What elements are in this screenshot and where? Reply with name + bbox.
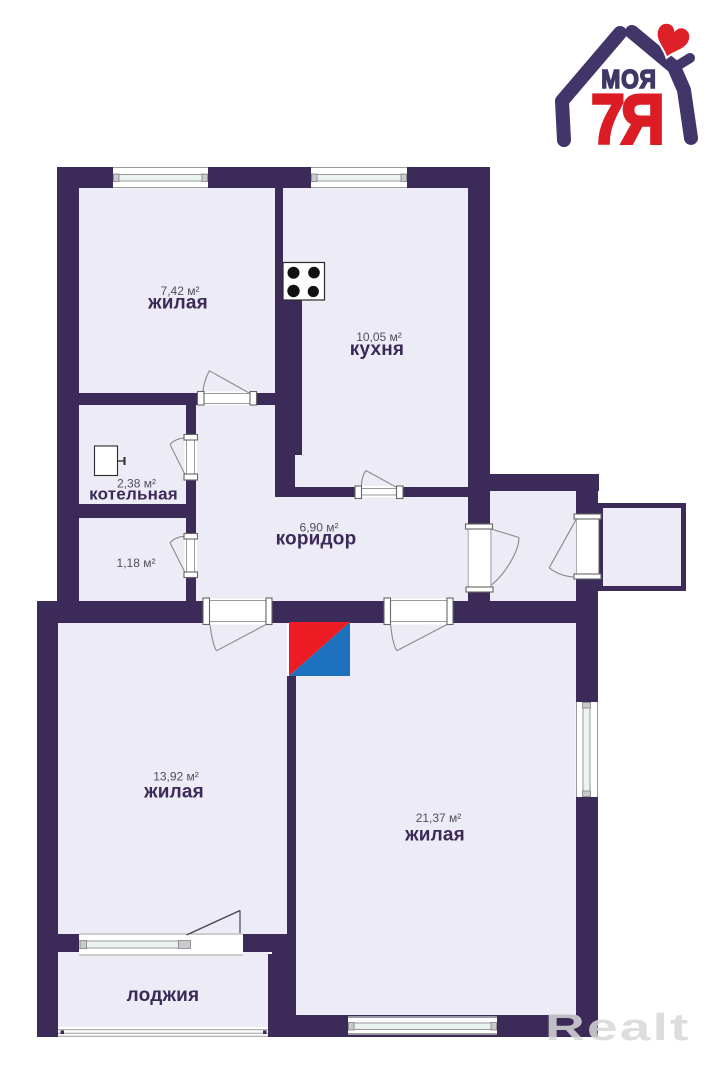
svg-text:коридор: коридор (276, 529, 357, 550)
svg-text:21,37 м²: 21,37 м² (416, 811, 462, 825)
svg-text:1,18 м²: 1,18 м² (117, 556, 156, 570)
svg-text:7Я: 7Я (591, 80, 661, 158)
svg-text:жилая: жилая (147, 293, 208, 314)
svg-text:лоджия: лоджия (127, 985, 200, 1006)
svg-text:кухня: кухня (350, 339, 404, 360)
svg-text:жилая: жилая (143, 782, 204, 803)
svg-text:жилая: жилая (404, 825, 465, 846)
svg-text:Realt: Realt (545, 1006, 691, 1049)
svg-text:котельная: котельная (89, 485, 178, 504)
